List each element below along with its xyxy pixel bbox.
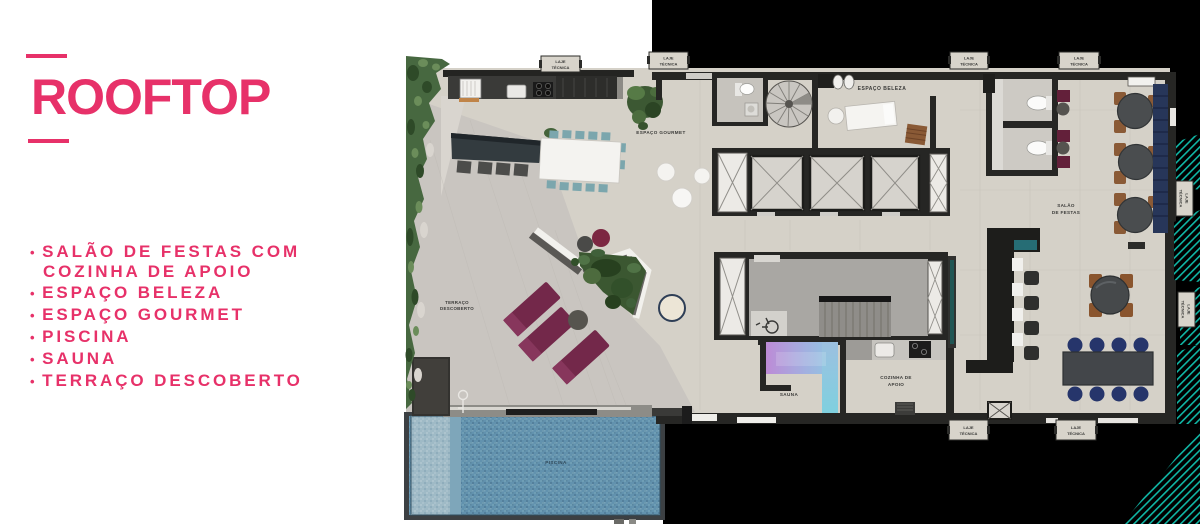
- svg-text:LAJE: LAJE: [663, 56, 674, 61]
- svg-text:TÉCNICA: TÉCNICA: [1181, 301, 1186, 319]
- svg-text:SAUNA: SAUNA: [780, 392, 799, 397]
- svg-text:TÉCNICA: TÉCNICA: [960, 431, 978, 436]
- svg-text:ESPAÇO GOURMET: ESPAÇO GOURMET: [636, 130, 685, 135]
- svg-text:TÉCNICA: TÉCNICA: [1179, 190, 1184, 208]
- svg-text:ESPAÇO BELEZA: ESPAÇO BELEZA: [858, 86, 907, 92]
- svg-text:LAJE: LAJE: [1071, 425, 1082, 430]
- svg-text:TÉCNICA: TÉCNICA: [1067, 431, 1085, 436]
- svg-text:LAJE: LAJE: [555, 59, 566, 64]
- svg-text:COZINHA DE: COZINHA DE: [880, 375, 911, 380]
- svg-text:TERRAÇO: TERRAÇO: [445, 300, 469, 305]
- svg-text:DE FESTAS: DE FESTAS: [1052, 210, 1080, 215]
- svg-text:LAJE: LAJE: [1074, 56, 1085, 61]
- svg-text:LAJE: LAJE: [963, 425, 974, 430]
- svg-text:TÉCNICA: TÉCNICA: [552, 65, 570, 70]
- svg-text:LAJE: LAJE: [1187, 304, 1192, 315]
- svg-text:DESCOBERTO: DESCOBERTO: [440, 306, 474, 311]
- svg-text:PISCINA: PISCINA: [545, 460, 567, 465]
- svg-text:LAJE: LAJE: [1185, 193, 1190, 204]
- svg-text:TÉCNICA: TÉCNICA: [1070, 62, 1088, 67]
- svg-text:TÉCNICA: TÉCNICA: [960, 62, 978, 67]
- svg-text:APOIO: APOIO: [888, 382, 904, 387]
- svg-text:SALÃO: SALÃO: [1057, 202, 1075, 208]
- svg-text:TÉCNICA: TÉCNICA: [660, 62, 678, 67]
- svg-text:LAJE: LAJE: [964, 56, 975, 61]
